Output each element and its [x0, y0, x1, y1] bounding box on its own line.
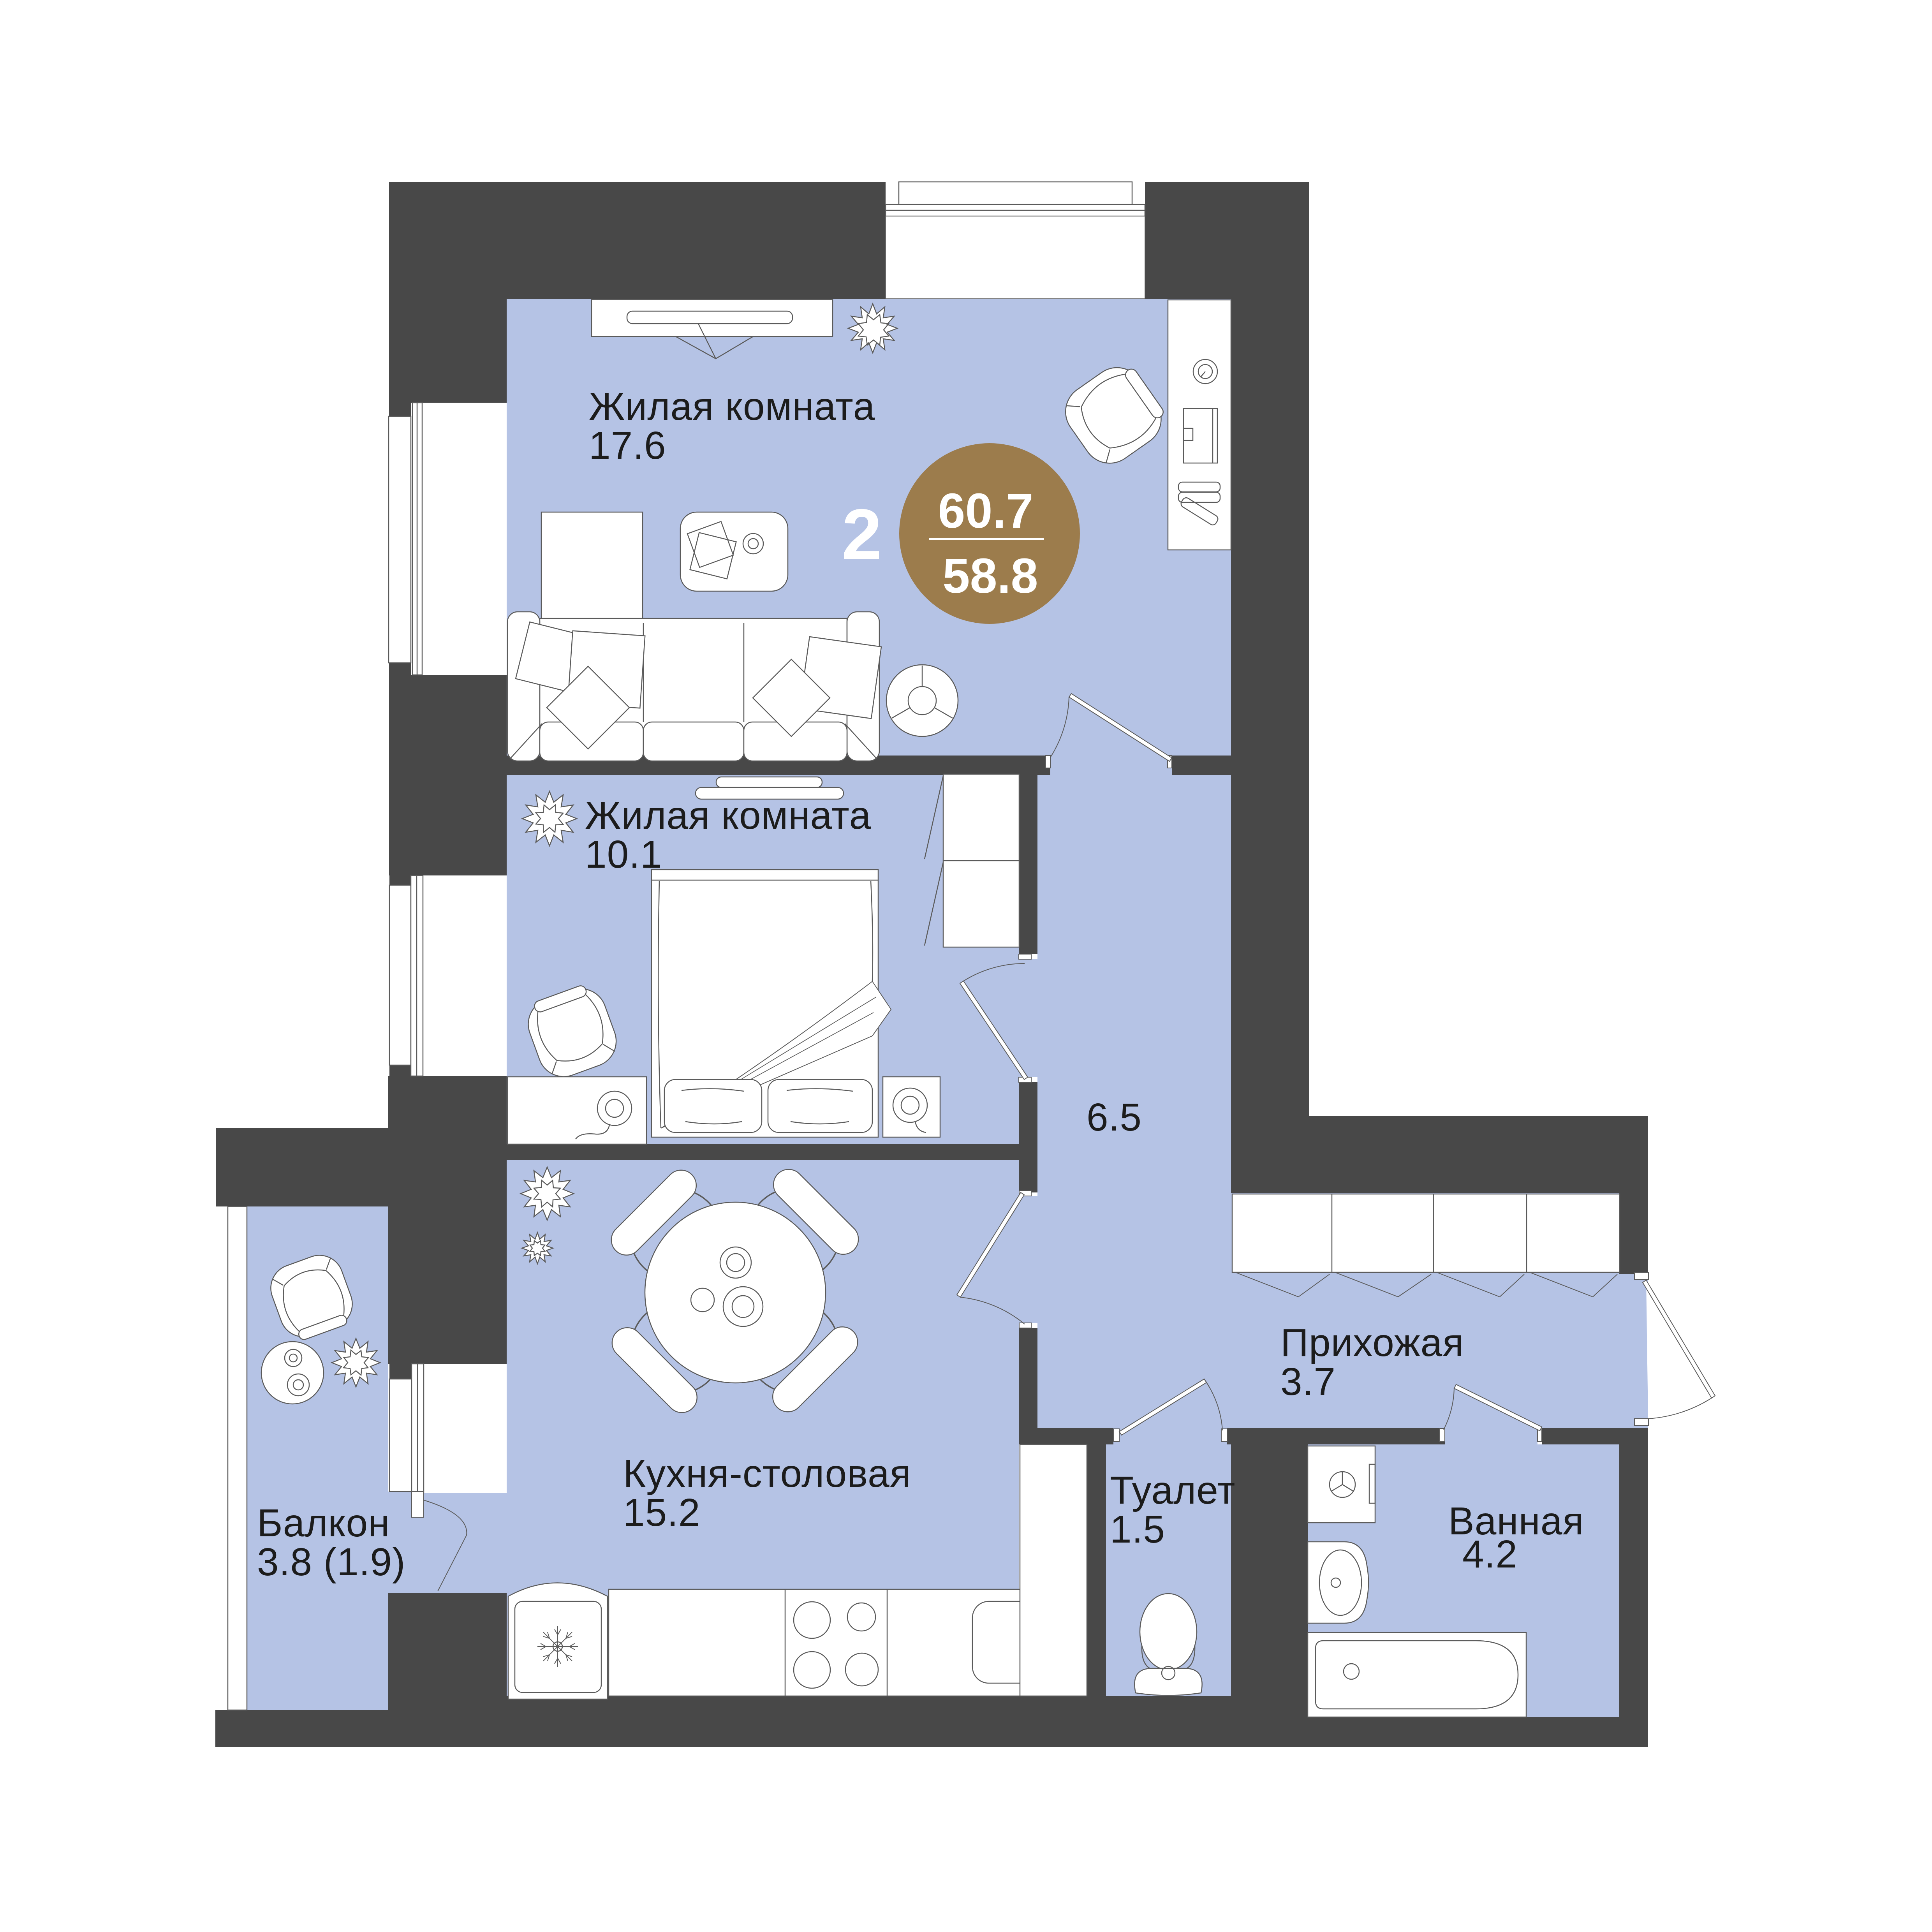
- svg-text:Прихожая: Прихожая: [1280, 1321, 1464, 1365]
- svg-text:3.7: 3.7: [1280, 1360, 1336, 1404]
- svg-text:2: 2: [842, 495, 882, 575]
- svg-text:Туалет: Туалет: [1110, 1469, 1235, 1512]
- svg-text:6.5: 6.5: [1087, 1095, 1142, 1139]
- svg-text:3.8 (1.9): 3.8 (1.9): [257, 1540, 405, 1584]
- svg-text:Балкон: Балкон: [257, 1501, 390, 1545]
- svg-text:1.5: 1.5: [1110, 1508, 1165, 1551]
- svg-text:Кухня-столовая: Кухня-столовая: [623, 1452, 911, 1495]
- svg-text:15.2: 15.2: [623, 1491, 701, 1534]
- svg-text:10.1: 10.1: [585, 833, 662, 876]
- svg-text:4.2: 4.2: [1462, 1532, 1518, 1576]
- svg-text:60.7: 60.7: [938, 483, 1033, 538]
- svg-text:Жилая комната: Жилая комната: [585, 794, 871, 837]
- svg-text:Жилая комната: Жилая комната: [589, 385, 875, 428]
- svg-text:58.8: 58.8: [942, 548, 1038, 603]
- svg-text:17.6: 17.6: [589, 424, 666, 467]
